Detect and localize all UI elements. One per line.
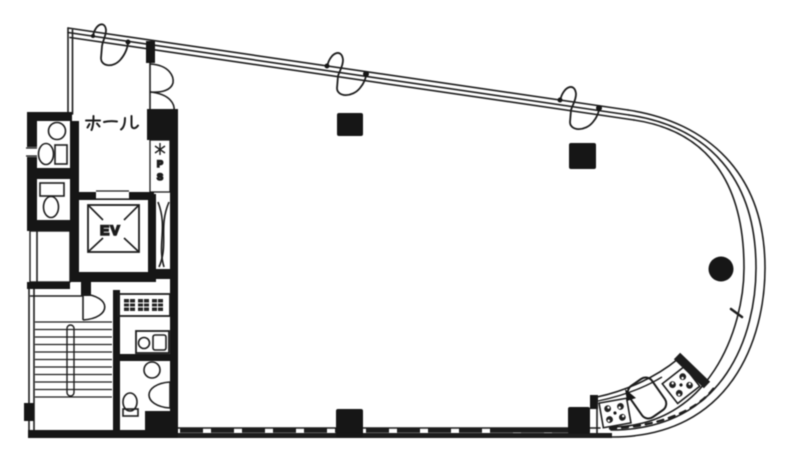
- svg-text:S: S: [157, 172, 163, 182]
- svg-text:P: P: [157, 159, 163, 169]
- svg-text:EV: EV: [100, 222, 121, 238]
